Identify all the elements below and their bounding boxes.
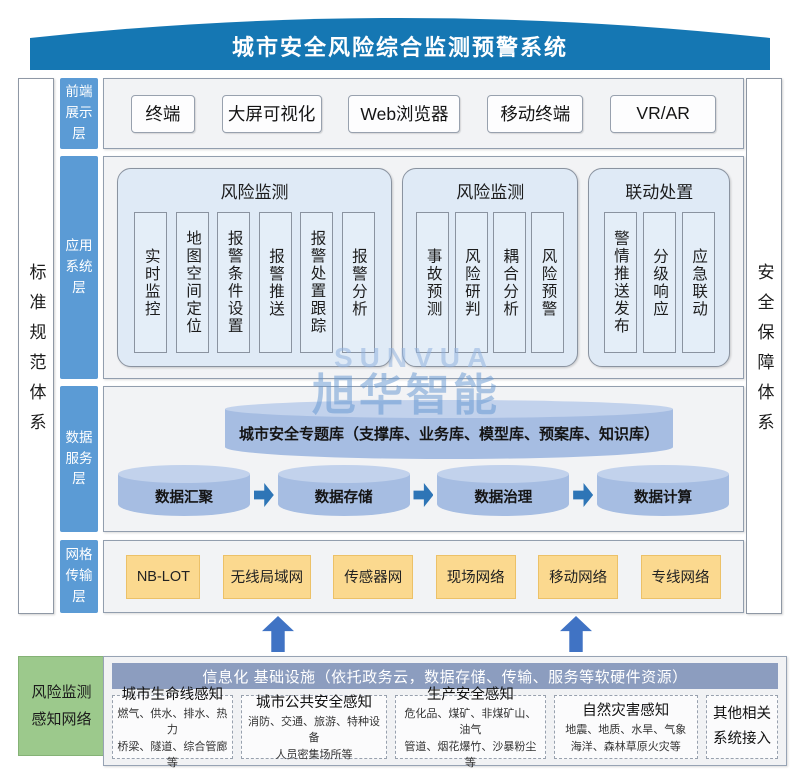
up-arrow-icon	[560, 616, 592, 652]
left-system-bar-label: 标准规范体系	[24, 250, 49, 443]
theme-database-cylinder: 城市安全专题库（支撑库、业务库、模型库、预案库、知识库）	[225, 409, 673, 459]
network-wlan: 无线局域网	[223, 555, 311, 599]
pipeline-stage-aggregation: 数据汇聚	[118, 474, 250, 516]
right-system-bar: 安全保障体系	[746, 78, 782, 614]
frontend-item-web-browser: Web浏览器	[348, 95, 460, 133]
group-items: 警情推送发布 分级响应 应急联动	[589, 203, 729, 366]
perception-box-production-safety: 生产安全感知 危化品、煤矿、非煤矿山、油气 管道、烟花爆竹、沙暴粉尘等	[395, 695, 545, 759]
right-system-bar-label: 安全保障体系	[752, 250, 777, 443]
app-item: 分级响应	[643, 212, 676, 353]
perception-box-public-safety: 城市公共安全感知 消防、交通、旅游、特种设备 人员密集场所等	[241, 695, 387, 759]
frontend-item-bigscreen: 大屏可视化	[222, 95, 322, 133]
perception-box-other-systems: 其他相关系统接入	[706, 695, 778, 759]
data-pipeline: 数据汇聚 数据存储 数据治理 数据计算	[104, 469, 743, 521]
perception-box-natural-disaster: 自然灾害感知 地震、地质、水旱、气象 海洋、森林草原火灾等	[554, 695, 698, 759]
app-item: 实时监控	[134, 212, 167, 353]
frontend-item-vr-ar: VR/AR	[610, 95, 716, 133]
app-group-linkage-disposal: 联动处置 警情推送发布 分级响应 应急联动	[588, 168, 730, 367]
group-title: 联动处置	[589, 169, 729, 203]
left-system-bar: 标准规范体系	[18, 78, 54, 614]
app-group-risk-monitoring-1: 风险监测 实时监控 地图空间定位 报警条件设置 报警推送 报警处置跟踪 报警分析	[117, 168, 392, 367]
network-nb-lot: NB-LOT	[126, 555, 200, 599]
app-item: 地图空间定位	[176, 212, 209, 353]
system-title: 城市安全风险综合监测预警系统	[30, 30, 770, 62]
flow-arrow-icon	[254, 483, 274, 507]
perception-box-lifeline: 城市生命线感知 燃气、供水、排水、热力 桥梁、隧道、综合管廊等	[112, 695, 233, 759]
infrastructure-panel: 信息化 基础设施（依托政务云，数据存储、传输、服务等软硬件资源） 城市生命线感知…	[103, 656, 787, 766]
up-arrow-icon	[262, 616, 294, 652]
perception-network-label: 风险监测感知网络	[18, 656, 105, 756]
application-layer-row: 风险监测 实时监控 地图空间定位 报警条件设置 报警推送 报警处置跟踪 报警分析…	[103, 156, 744, 379]
app-item: 报警条件设置	[217, 212, 250, 353]
data-service-layer-row: 城市安全专题库（支撑库、业务库、模型库、预案库、知识库） 数据汇聚 数据存储 数…	[103, 386, 744, 532]
pipeline-stage-governance: 数据治理	[437, 474, 569, 516]
group-title: 风险监测	[403, 169, 577, 203]
app-item: 报警推送	[259, 212, 292, 353]
layer-label-data-service: 数据服务层	[60, 386, 98, 532]
network-leased-line: 专线网络	[641, 555, 721, 599]
app-item: 警情推送发布	[604, 212, 637, 353]
layer-label-transport: 网格传输层	[60, 540, 98, 613]
app-item: 报警处置跟踪	[300, 212, 333, 353]
app-item: 事故预测	[416, 212, 449, 353]
app-item: 风险预警	[531, 212, 564, 353]
transport-layer-row: NB-LOT 无线局域网 传感器网 现场网络 移动网络 专线网络	[103, 540, 744, 613]
group-items: 实时监控 地图空间定位 报警条件设置 报警推送 报警处置跟踪 报警分析	[118, 203, 391, 366]
network-sensor: 传感器网	[333, 555, 413, 599]
group-items: 事故预测 风险研判 耦合分析 风险预警	[403, 203, 577, 366]
layer-label-application: 应用系统层	[60, 156, 98, 379]
pipeline-stage-storage: 数据存储	[278, 474, 410, 516]
network-mobile: 移动网络	[538, 555, 618, 599]
frontend-layer-row: 终端 大屏可视化 Web浏览器 移动终端 VR/AR	[103, 78, 744, 149]
app-item: 应急联动	[682, 212, 715, 353]
app-item: 耦合分析	[493, 212, 526, 353]
perception-boxes: 城市生命线感知 燃气、供水、排水、热力 桥梁、隧道、综合管廊等 城市公共安全感知…	[112, 695, 778, 759]
pipeline-stage-computing: 数据计算	[597, 474, 729, 516]
app-group-risk-monitoring-2: 风险监测 事故预测 风险研判 耦合分析 风险预警	[402, 168, 578, 367]
group-title: 风险监测	[118, 169, 391, 203]
layer-label-frontend: 前端展示层	[60, 78, 98, 149]
flow-arrow-icon	[573, 483, 593, 507]
flow-arrow-icon	[413, 483, 433, 507]
app-item: 风险研判	[455, 212, 488, 353]
frontend-item-mobile: 移动终端	[487, 95, 583, 133]
network-field: 现场网络	[436, 555, 516, 599]
app-item: 报警分析	[342, 212, 375, 353]
frontend-item-terminal: 终端	[131, 95, 195, 133]
diagram-canvas: 城市安全风险综合监测预警系统 标准规范体系 安全保障体系 前端展示层 应用系统层…	[0, 0, 800, 775]
